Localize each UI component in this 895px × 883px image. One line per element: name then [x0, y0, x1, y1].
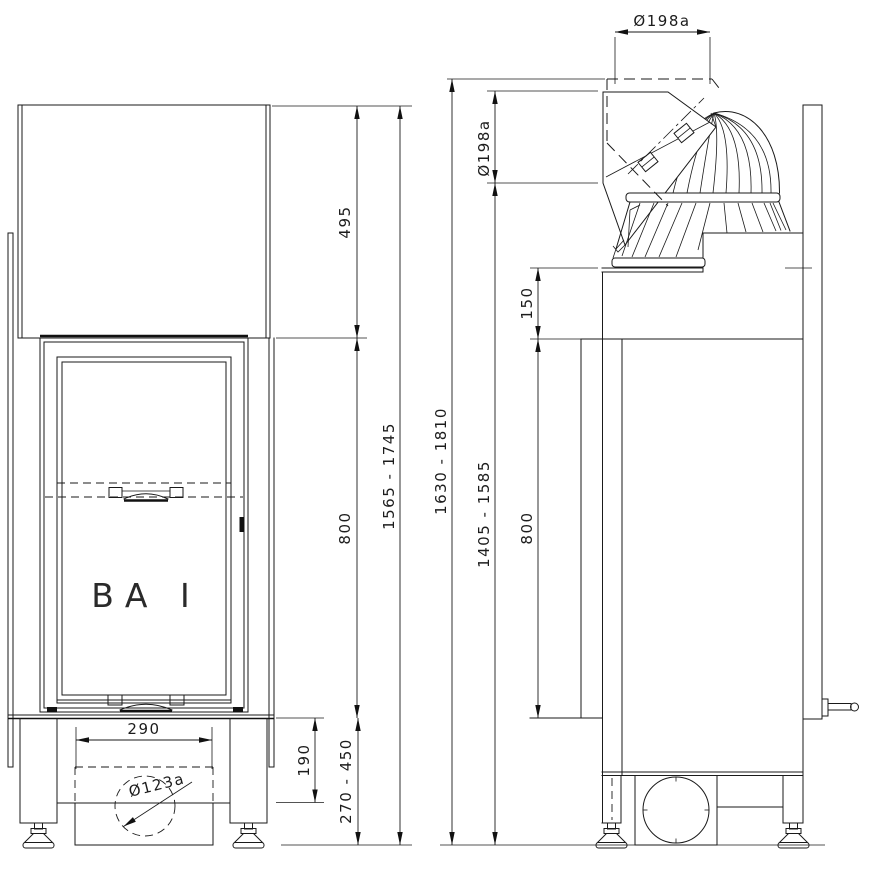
dim-air-inlet-diameter: Ø123a: [127, 770, 187, 801]
dim-plinth-height-range: 270 - 450: [337, 738, 355, 824]
right-side-wall: [269, 338, 274, 767]
plinth: [8, 715, 274, 719]
dim-hood-height: 495: [336, 205, 354, 238]
dim-flue-diameter-rear: Ø198a: [475, 119, 493, 176]
left-side-wall: [8, 233, 13, 767]
dim-overall-height-range: 1630 - 1810: [432, 407, 450, 515]
dim-flue-diameter-top: Ø198a: [633, 12, 690, 30]
dim-collar-height: 150: [518, 286, 536, 319]
adjustable-foot: [23, 823, 54, 848]
air-control-mechanism: [109, 488, 183, 501]
rear-panel: [803, 105, 822, 823]
door-frame: [40, 338, 248, 712]
door-glass: [57, 357, 231, 703]
adjustable-foot: [778, 823, 809, 848]
dim-firebox-height-side: 800: [518, 511, 536, 544]
model-label: BA I: [91, 576, 200, 615]
door-sill-mechanism: [47, 695, 243, 713]
fan-housing: [635, 776, 783, 846]
control-handle: [822, 699, 859, 716]
side-body: [530, 233, 803, 823]
dim-flue-height-range: 1405 - 1585: [475, 460, 493, 568]
air-baffle-hidden-lines: [45, 483, 243, 497]
dim-base-opening-height: 190: [295, 743, 313, 776]
side-legs: [602, 776, 803, 824]
dim-firebox-height-front: 800: [336, 511, 354, 544]
adjustable-foot: [233, 823, 264, 848]
dim-base-opening-width: 290: [127, 720, 160, 738]
dim-front-total-height-range: 1565 - 1745: [380, 422, 398, 530]
dome-collar-ring: [626, 193, 780, 202]
technical-drawing: Ø123a BA I 290 495 800 190 270 - 450 156…: [0, 0, 895, 883]
side-view: [530, 79, 859, 848]
fan-circle: [643, 777, 709, 843]
drawing-canvas: Ø123a BA I 290 495 800 190 270 - 450 156…: [0, 0, 895, 883]
adjustable-foot: [596, 823, 627, 848]
front-dimensions: 290 495 800 190 270 - 450 1565 - 1745 16…: [76, 79, 452, 845]
door-latch: [240, 517, 245, 532]
hood-panel: [18, 105, 270, 338]
flue-elbow: [603, 92, 716, 252]
